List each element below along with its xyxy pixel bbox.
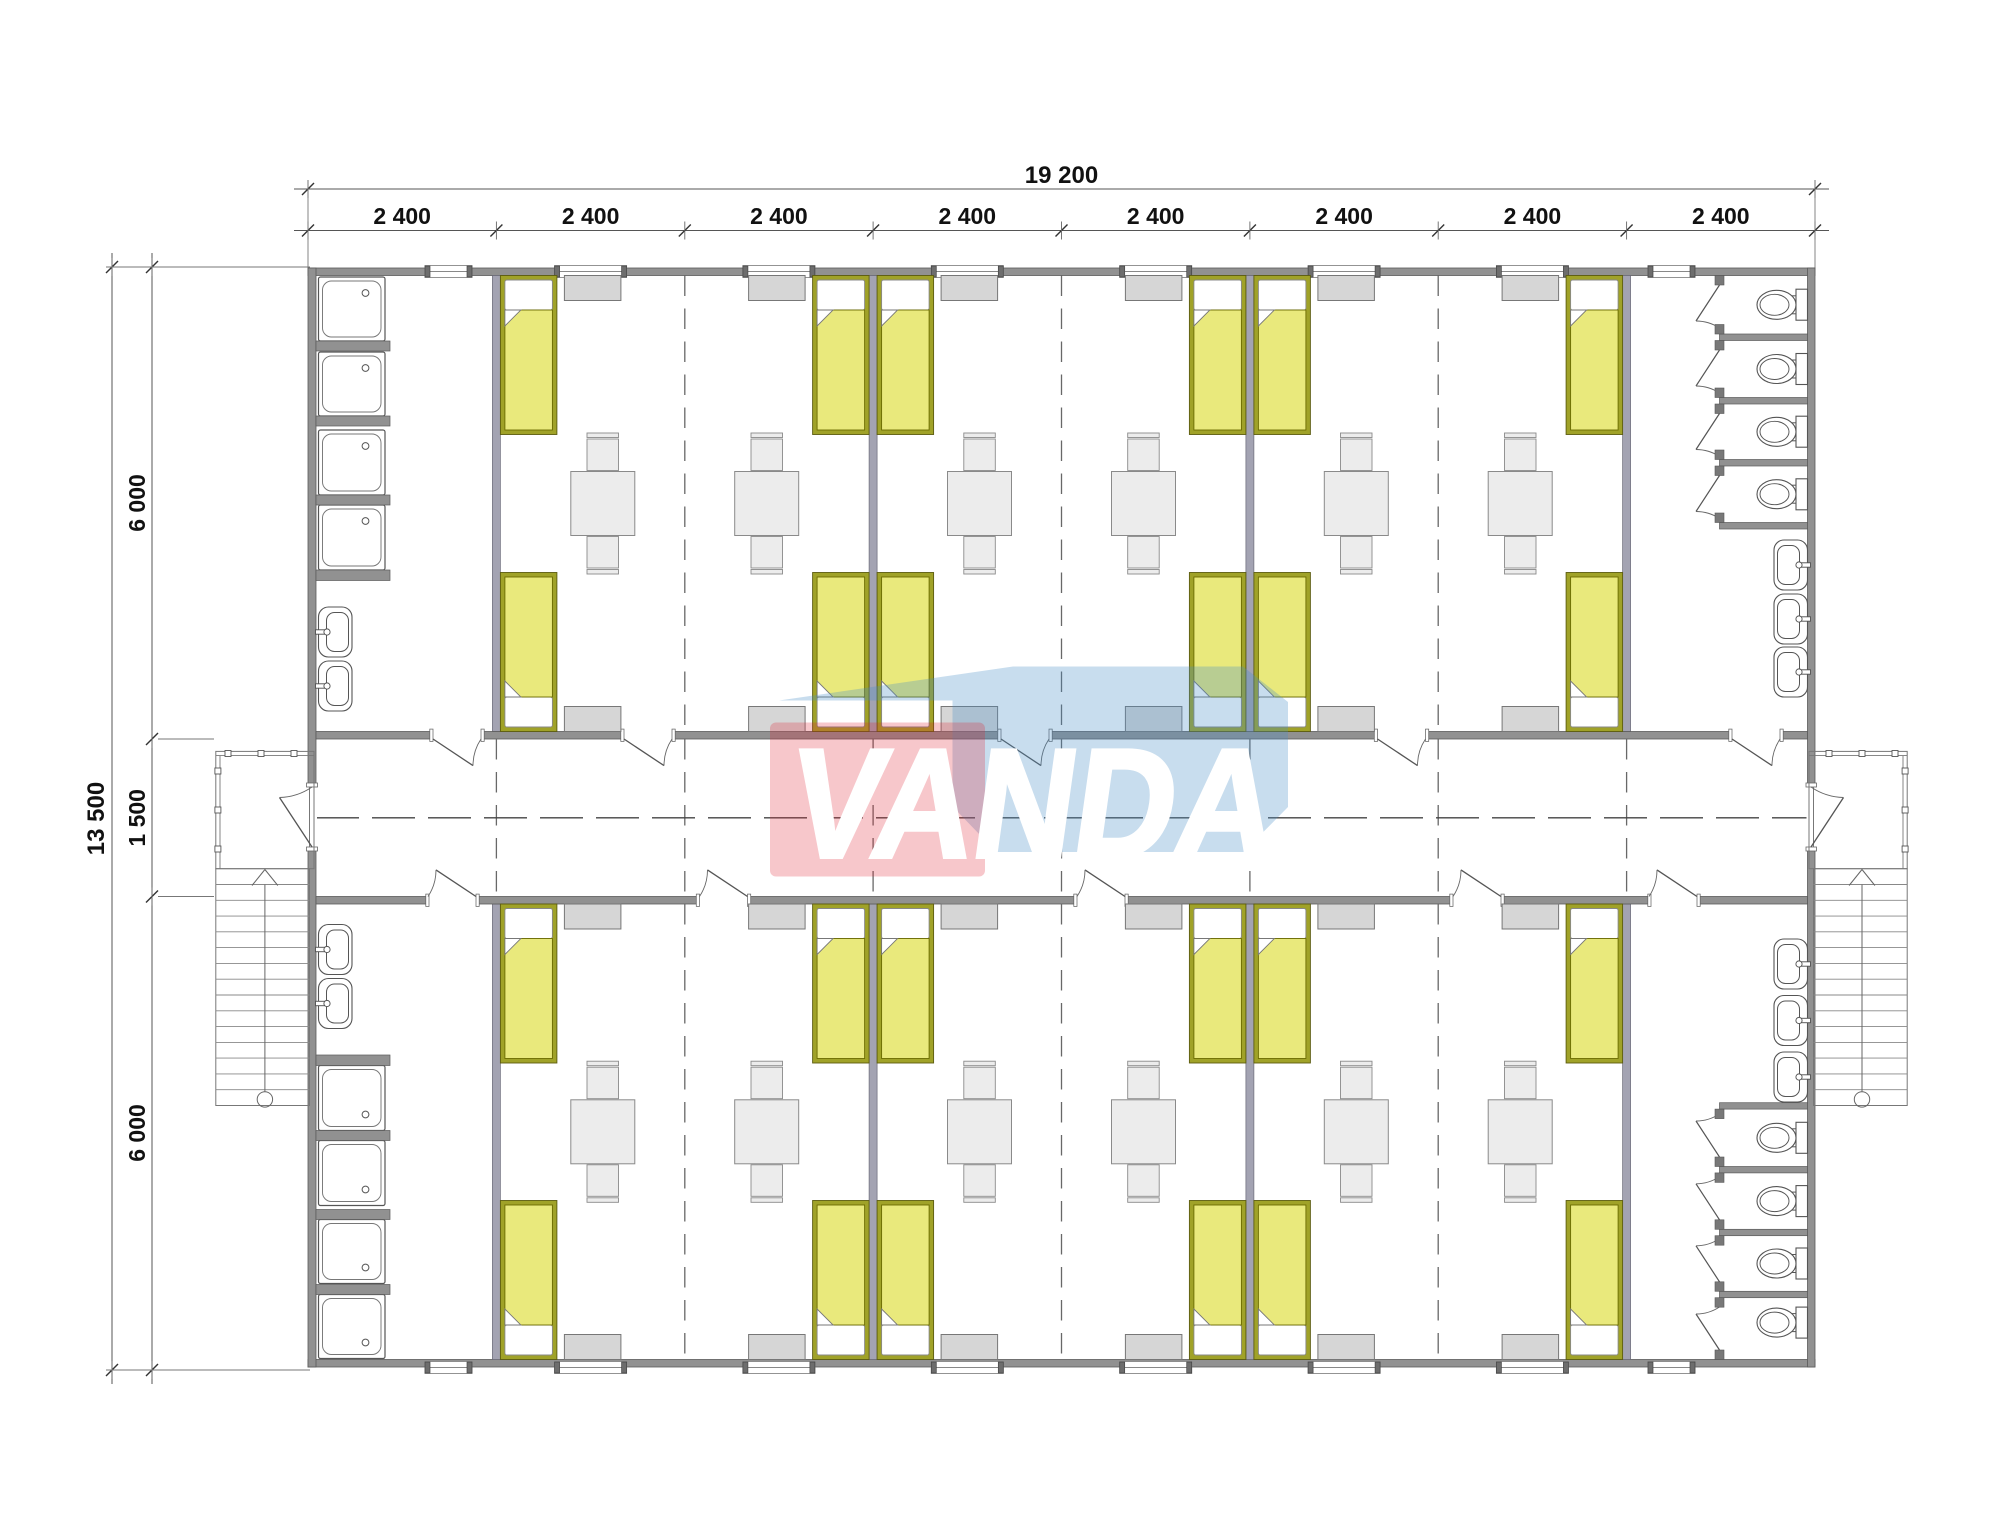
svg-text:2 400: 2 400 [750,203,808,229]
svg-text:6 000: 6 000 [124,474,150,532]
svg-text:13 500: 13 500 [83,782,110,855]
svg-text:1 500: 1 500 [124,789,150,847]
svg-text:19 200: 19 200 [1025,162,1098,189]
svg-text:2 400: 2 400 [1692,203,1750,229]
svg-text:6 000: 6 000 [124,1104,150,1162]
svg-text:2 400: 2 400 [562,203,620,229]
svg-text:2 400: 2 400 [373,203,431,229]
svg-text:2 400: 2 400 [1504,203,1562,229]
svg-text:2 400: 2 400 [939,203,997,229]
svg-text:VANDA: VANDA [780,718,1289,891]
svg-text:2 400: 2 400 [1315,203,1373,229]
svg-text:2 400: 2 400 [1127,203,1185,229]
